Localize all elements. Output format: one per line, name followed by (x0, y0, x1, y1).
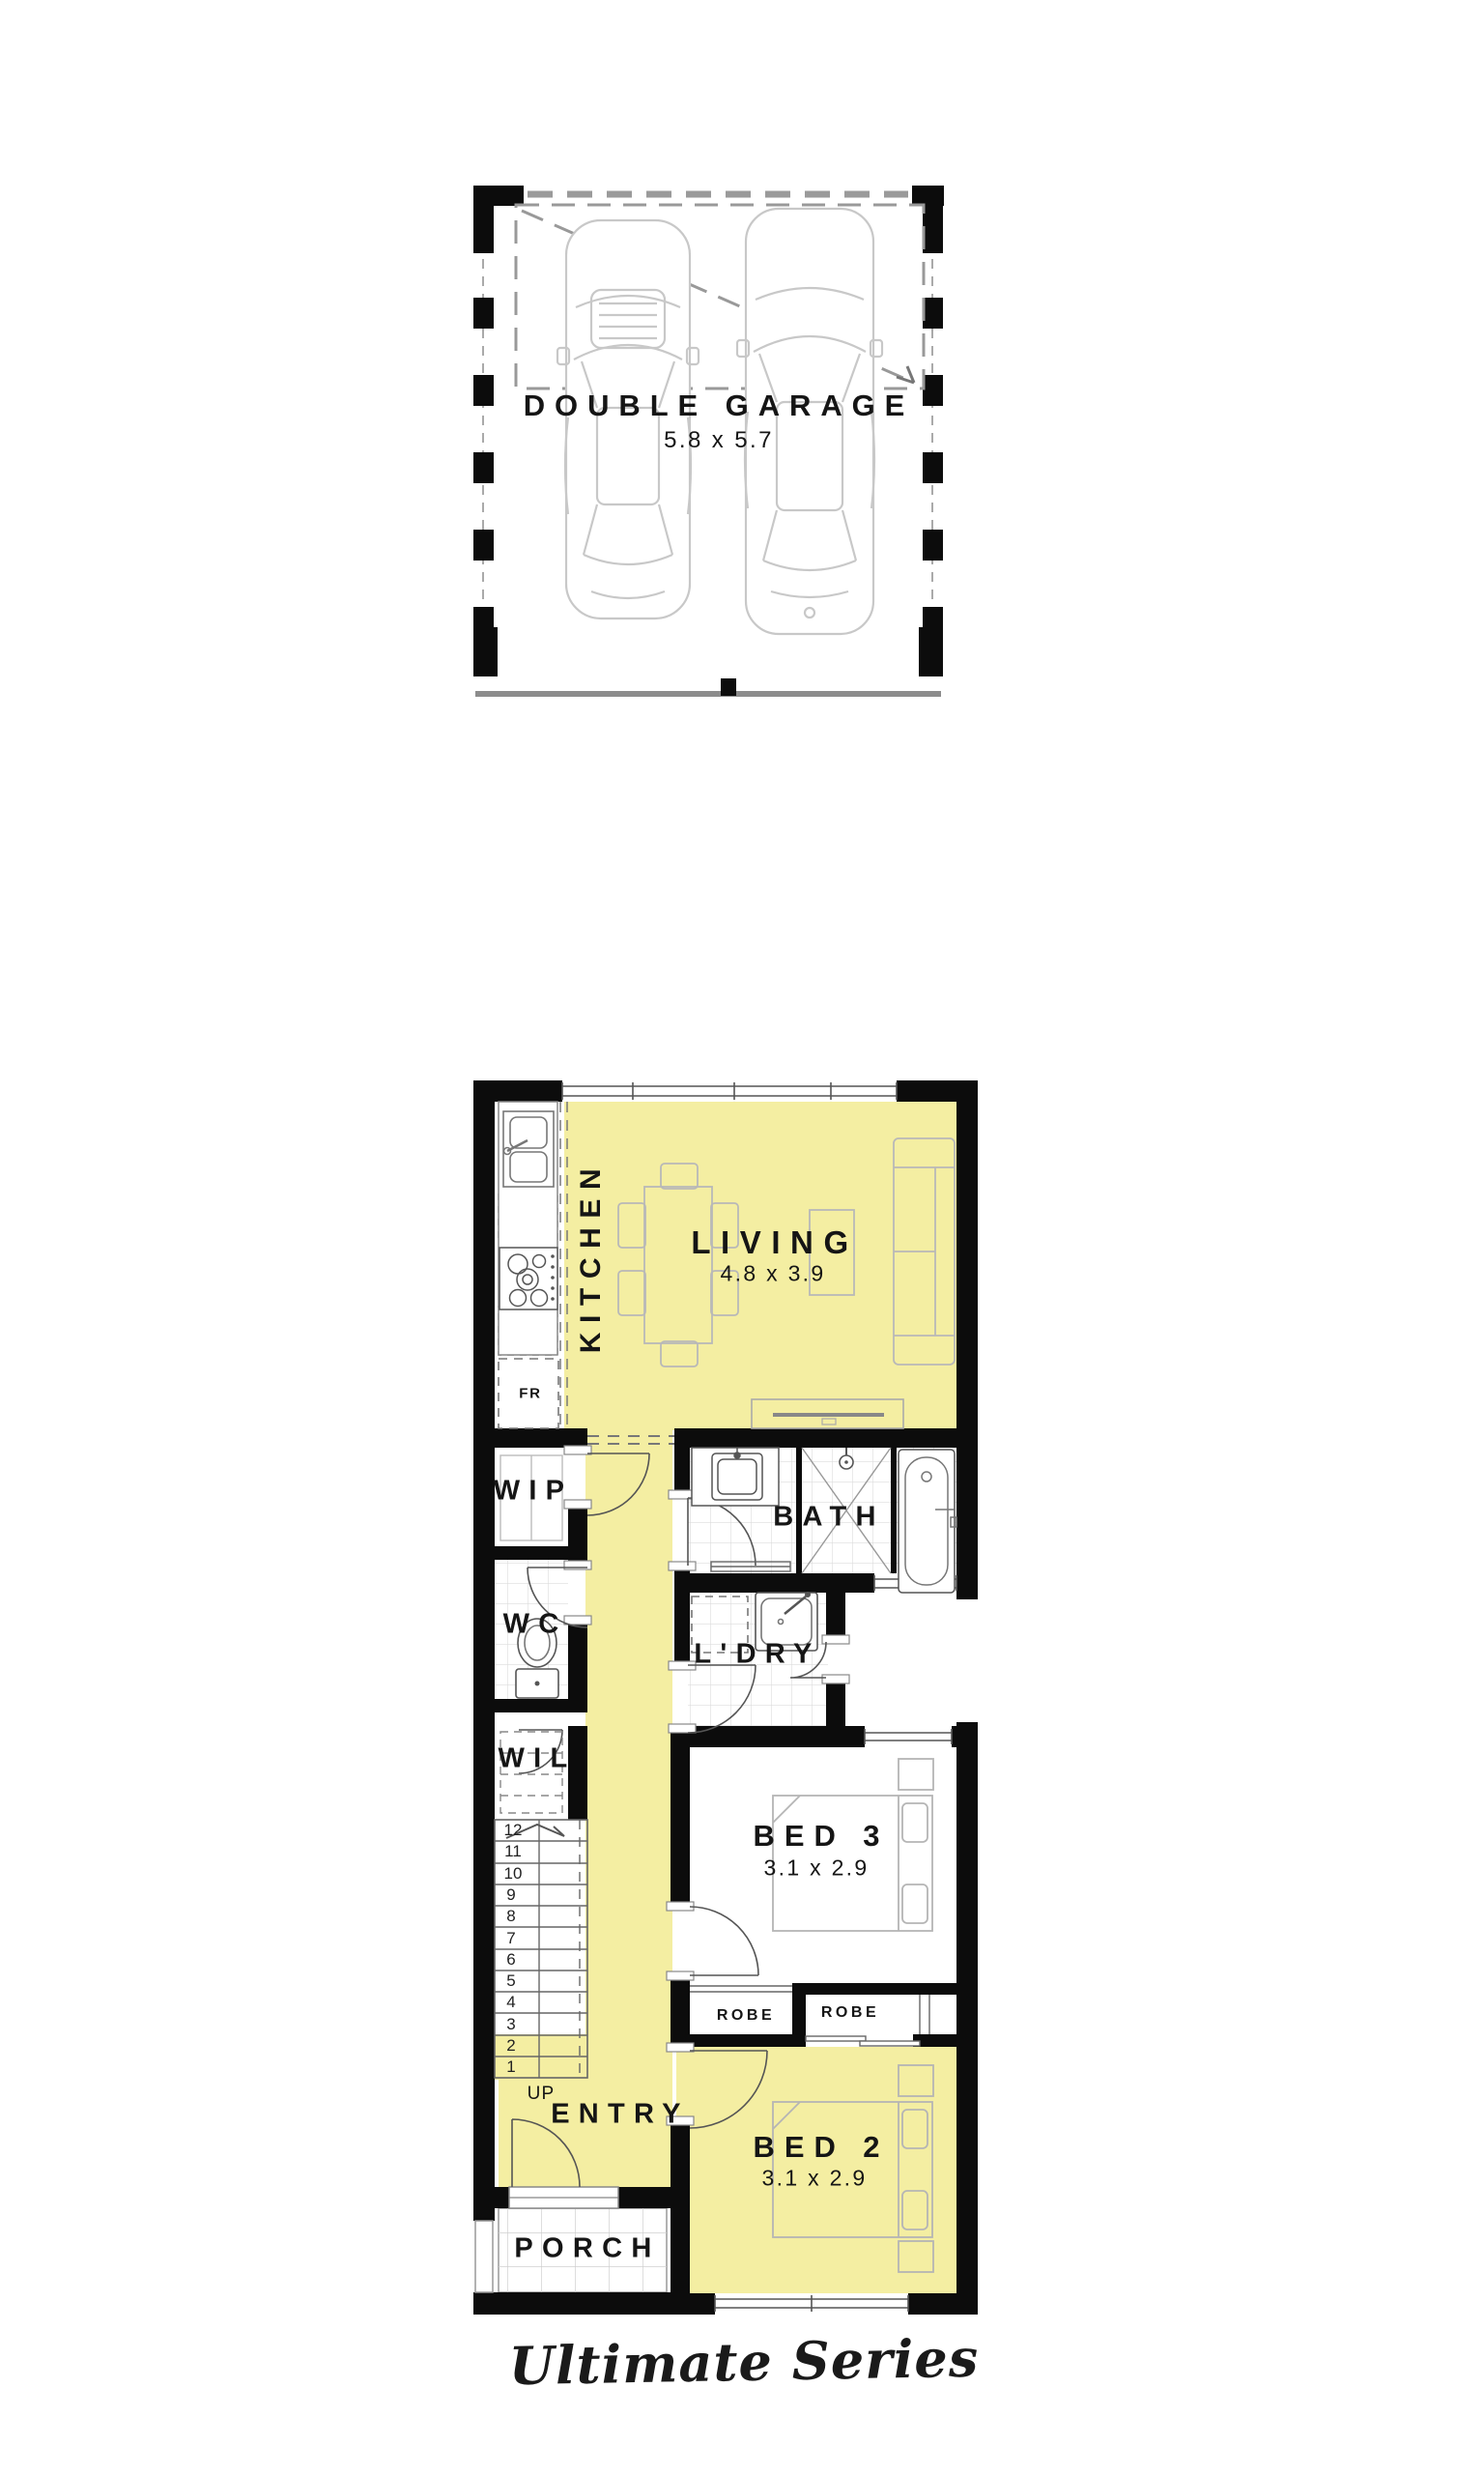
floorplan-page: DOUBLE GARAGE 5.8 x 5.7 KITCHEN LIVING 4… (0, 0, 1484, 2474)
porch-post (475, 2221, 493, 2292)
vanity-basin (692, 1448, 779, 1506)
room-label-wc: WC (503, 1609, 568, 1641)
stair-number-3: 3 (506, 2015, 515, 2034)
room-label-bed2: BED 2 (754, 2130, 890, 2165)
stair-number-7: 7 (506, 1929, 515, 1948)
room-label-bed3: BED 3 (754, 1819, 890, 1854)
room-dims-living: 4.8 x 3.9 (721, 1261, 826, 1287)
room-label-porch: PORCH (514, 2233, 660, 2265)
stair-number-8: 8 (506, 1907, 515, 1926)
stair-number-10: 10 (504, 1864, 523, 1884)
room-label-wip: WIP (494, 1476, 574, 1508)
bathtub (899, 1450, 956, 1593)
garage-dims-label: 5.8 x 5.7 (664, 427, 774, 454)
stair-number-2: 2 (506, 2036, 515, 2056)
up-label: UP (528, 2084, 556, 2105)
room-label-ldry: L'DRY (694, 1639, 820, 1671)
robe-left-label: ROBE (717, 2007, 775, 2025)
room-label-living: LIVING (691, 1224, 858, 1261)
room-dims-bed3: 3.1 x 2.9 (764, 1855, 870, 1882)
front-door-leaf (509, 2187, 618, 2208)
garage-title-label: DOUBLE GARAGE (524, 388, 915, 423)
room-label-entry: ENTRY (551, 2099, 690, 2131)
stair-number-4: 4 (506, 1993, 515, 2012)
robe-right-label: ROBE (821, 2004, 879, 2022)
room-label-bath: BATH (773, 1502, 885, 1534)
stair-number-6: 6 (506, 1950, 515, 1970)
stair-number-5: 5 (506, 1971, 515, 1991)
kitchen-bench (499, 1102, 557, 1355)
stair-number-12: 12 (504, 1821, 523, 1840)
stair-number-9: 9 (506, 1885, 515, 1905)
cooktop (499, 1248, 557, 1309)
room-dims-bed2: 3.1 x 2.9 (762, 2166, 868, 2192)
fridge-label: FR (519, 1386, 542, 1402)
room-label-wil: WIL (499, 1743, 577, 1775)
room-label-kitchen: KITCHEN (575, 1160, 608, 1354)
series-title: Ultimate Series (508, 2327, 980, 2397)
stair-number-11: 11 (504, 1842, 522, 1861)
stair-number-1: 1 (506, 2057, 515, 2077)
